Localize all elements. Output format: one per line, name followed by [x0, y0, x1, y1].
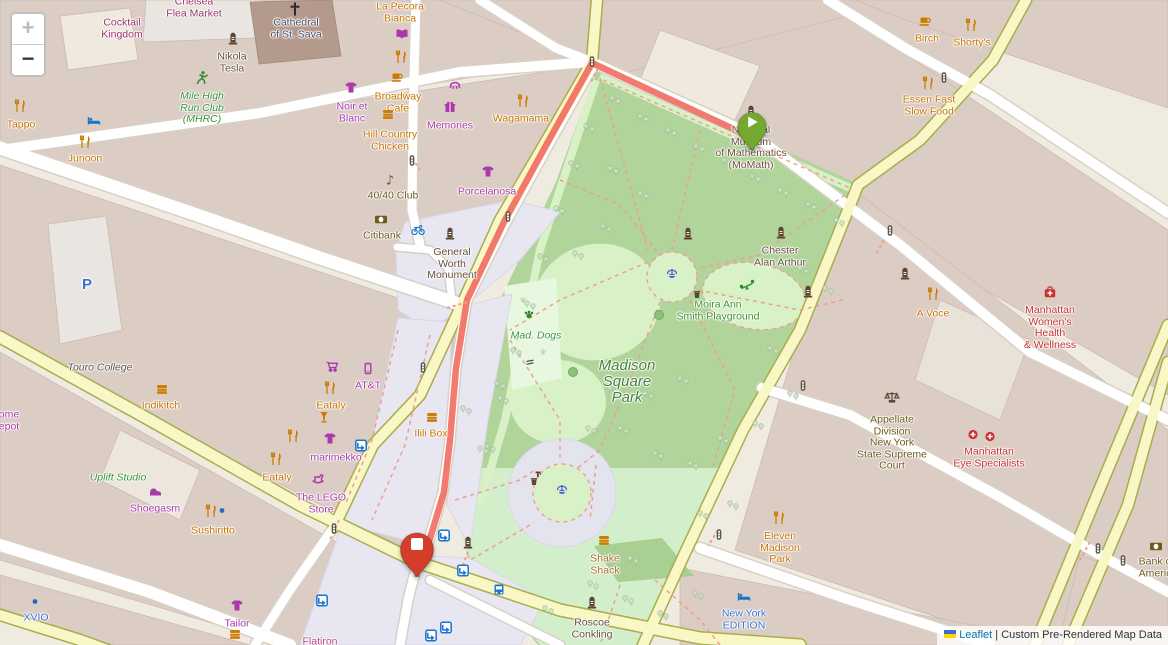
poi-label-line: Shack — [590, 565, 620, 577]
poi-label-birch: Birch — [915, 33, 939, 45]
route-start-marker[interactable] — [734, 104, 770, 155]
poi-label-line: Tappo — [7, 119, 36, 131]
poi-label-line: Roscoe — [572, 618, 613, 630]
poi-label-line: Eataly — [262, 472, 291, 484]
poi-label-la-pecora-bianca: La PecoraBianca — [376, 2, 424, 25]
poi-label-broadway-cafe: BroadwayCafe — [375, 92, 422, 115]
poi-label-ilili-box: Ilili Box — [414, 428, 447, 440]
poi-label-line: 40/40 Club — [368, 190, 419, 202]
poi-label-line: Bank o — [1139, 557, 1168, 569]
poi-label-line: Hill Country — [363, 130, 417, 142]
poi-label-line: Smith Playground — [677, 311, 760, 323]
poi-label-line: Shoegasm — [130, 503, 180, 515]
poi-label-line: Ilili Box — [414, 428, 447, 440]
poi-label-line: Junoon — [68, 153, 102, 165]
poi-label-line: Flatiron — [302, 636, 337, 645]
poi-label-line: La Pecora — [376, 2, 424, 14]
poi-label-line: Uplift Studio — [90, 472, 147, 484]
poi-label-line: Indikitch — [142, 400, 181, 412]
poi-label-uplift-studio: Uplift Studio — [90, 472, 147, 484]
poi-label-line: Cocktail — [101, 18, 142, 30]
poi-label-line: Wagamama — [493, 113, 549, 125]
poi-label-line: New York — [857, 437, 927, 449]
poi-label-line: XVIO — [23, 612, 48, 624]
poi-label-line: Chicken — [363, 141, 417, 153]
poi-label-eataly-north: Eataly — [316, 400, 345, 412]
poi-label-att: AT&T — [355, 380, 381, 392]
poi-label-nikola-tesla: NikolaTesla — [217, 52, 246, 75]
poi-label-line: Court — [857, 460, 927, 472]
poi-label-line: Kingdom — [101, 29, 142, 41]
poi-label-shortys: Shorty's — [953, 37, 991, 49]
poi-label-chelsea-flea-market: ChelseaFlea Market — [166, 0, 221, 20]
attribution-separator: | — [992, 629, 1001, 641]
poi-label-line: ome — [0, 410, 19, 422]
poi-label-line: EDITION — [722, 620, 766, 632]
route-stop-marker[interactable] — [396, 523, 438, 582]
poi-label-essen-fast-slow-food: Essen FastSlow Food — [903, 95, 956, 118]
poi-label-line: Health — [1024, 328, 1076, 340]
poi-label-shake-shack: ShakeShack — [590, 554, 620, 577]
poi-label-new-york-edition: New YorkEDITION — [722, 609, 766, 632]
poi-label-general-worth-monument: GeneralWorthMonument — [427, 247, 477, 282]
poi-label-manhattan-eye-specialists: ManhattanEye Specialists — [953, 447, 1024, 470]
attribution-bar: Leaflet | Custom Pre-Rendered Map Data — [937, 626, 1168, 645]
poi-label-line: Tesla — [217, 63, 246, 75]
poi-label-appellate-division: AppellateDivisionNew YorkState SupremeCo… — [857, 414, 927, 472]
poi-label-line: Monument — [427, 270, 477, 282]
poi-label-line: Blanc — [337, 113, 368, 125]
poi-label-line: Flea Market — [166, 8, 221, 20]
poi-label-line: of St. Sava — [270, 29, 321, 41]
poi-label-wagamama: Wagamama — [493, 113, 549, 125]
poi-label-manhattan-womens-health: ManhattanWomen'sHealth& Wellness — [1024, 305, 1076, 351]
poi-label-home-depot-clipped: omeepot — [0, 410, 19, 433]
poi-label-line: Appellate — [857, 414, 927, 426]
poi-label-line: Noir et — [337, 102, 368, 114]
poi-label-shoegasm: Shoegasm — [130, 503, 180, 515]
poi-label-mad-dogs: Mad. Dogs — [511, 330, 562, 342]
attribution-text: Custom Pre-Rendered Map Data — [1001, 629, 1162, 641]
poi-label-xvio: XVIO — [23, 612, 48, 624]
poi-label-the-lego-store: The LEGOStore — [296, 493, 346, 516]
poi-label-line: Touro College — [68, 362, 133, 374]
poi-label-line: Moira Ann — [677, 300, 760, 312]
ukraine-flag-icon — [944, 630, 956, 638]
poi-label-line: New York — [722, 609, 766, 621]
poi-label-mile-high-run-club: Mile HighRun Club(MHRC) — [180, 91, 224, 126]
poi-label-4040-club: 40/40 Club — [368, 190, 419, 202]
poi-label-line: Manhattan — [1024, 305, 1076, 317]
poi-label-line: Alan Arthur — [754, 257, 806, 269]
poi-label-line: Manhattan — [953, 447, 1024, 459]
poi-label-line: epot — [0, 421, 19, 433]
poi-label-bank-of-america-clipped: Bank oAmeric — [1139, 557, 1168, 580]
poi-label-tailor: Tailor — [224, 618, 249, 630]
poi-label-line: AT&T — [355, 380, 381, 392]
poi-label-line: (MoMath) — [715, 160, 786, 172]
poi-label-line: Sushiritto — [191, 525, 235, 537]
poi-label-noir-et-blanc: Noir etBlanc — [337, 102, 368, 125]
poi-label-a-voce: A Voce — [917, 308, 950, 320]
zoom-control: + − — [10, 12, 46, 77]
poi-label-line: Chester — [754, 246, 806, 258]
poi-label-line: Park — [599, 390, 656, 406]
poi-label-indikitch: Indikitch — [142, 400, 181, 412]
poi-label-tappo: Tappo — [7, 119, 36, 131]
poi-label-line: Shake — [590, 554, 620, 566]
poi-label-line: Slow Food — [903, 106, 956, 118]
poi-label-touro-college: Touro College — [68, 362, 133, 374]
zoom-in-button[interactable]: + — [12, 14, 44, 45]
poi-label-cathedral-of-st-sava: Cathedralof St. Sava — [270, 18, 321, 41]
poi-label-eleven-madison-park: ElevenMadisonPark — [760, 531, 800, 566]
poi-label-eataly-south: Eataly — [262, 472, 291, 484]
poi-label-line: Park — [760, 554, 800, 566]
poi-label-line: Birch — [915, 33, 939, 45]
poi-label-moira-ann-smith-playground: Moira AnnSmith Playground — [677, 300, 760, 323]
poi-label-sushiritto: Sushiritto — [191, 525, 235, 537]
leaflet-link[interactable]: Leaflet — [959, 629, 992, 641]
poi-label-line: Americ — [1139, 568, 1168, 580]
poi-label-line: & Wellness — [1024, 340, 1076, 352]
poi-label-line: A Voce — [917, 308, 950, 320]
poi-label-roscoe-conkling: RoscoeConkling — [572, 618, 613, 641]
zoom-out-button[interactable]: − — [12, 45, 44, 75]
poi-label-porcelanosa: Porcelanosa — [458, 186, 516, 198]
poi-label-line: Conkling — [572, 629, 613, 641]
poi-label-line: General — [427, 247, 477, 259]
poi-label-madison-square-park: MadisonSquarePark — [599, 358, 656, 406]
poi-label-line: Tailor — [224, 618, 249, 630]
poi-label-line: Eleven — [760, 531, 800, 543]
poi-label-marimekko: marimekko — [310, 452, 361, 464]
poi-label-line: Memories — [427, 120, 473, 132]
poi-label-line: Citibank — [363, 230, 401, 242]
poi-label-line: Cafe — [375, 103, 422, 115]
poi-label-line: Store — [296, 504, 346, 516]
poi-label-line: Eataly — [316, 400, 345, 412]
poi-label-line: Broadway — [375, 92, 422, 104]
poi-label-citibank: Citibank — [363, 230, 401, 242]
poi-label-line: Porcelanosa — [458, 186, 516, 198]
poi-label-line: Shorty's — [953, 37, 991, 49]
poi-label-line: (MHRC) — [180, 114, 224, 126]
poi-label-line: Cathedral — [270, 18, 321, 30]
poi-label-flatiron: Flatiron — [302, 636, 337, 645]
poi-label-line: P — [82, 277, 92, 293]
poi-label-line: Bianca — [376, 13, 424, 25]
poi-label-parking-p: P — [82, 277, 92, 293]
poi-label-line: Mile High — [180, 91, 224, 103]
basemap-layer — [0, 0, 1168, 645]
poi-label-cocktail-kingdom: CocktailKingdom — [101, 18, 142, 41]
poi-label-line: marimekko — [310, 452, 361, 464]
poi-label-line: Eye Specialists — [953, 458, 1024, 470]
poi-label-chester-alan-arthur: ChesterAlan Arthur — [754, 246, 806, 269]
poi-label-line: Nikola — [217, 52, 246, 64]
poi-label-line: Essen Fast — [903, 95, 956, 107]
poi-label-line: Square — [599, 374, 656, 390]
poi-label-line: The LEGO — [296, 493, 346, 505]
map-canvas[interactable]: ChelseaFlea MarketCocktailKingdomCathedr… — [0, 0, 1168, 645]
poi-label-line: Madison — [599, 358, 656, 374]
poi-label-junoon: Junoon — [68, 153, 102, 165]
poi-label-line: Mad. Dogs — [511, 330, 562, 342]
poi-label-hill-country-chicken: Hill CountryChicken — [363, 130, 417, 153]
poi-label-memories: Memories — [427, 120, 473, 132]
